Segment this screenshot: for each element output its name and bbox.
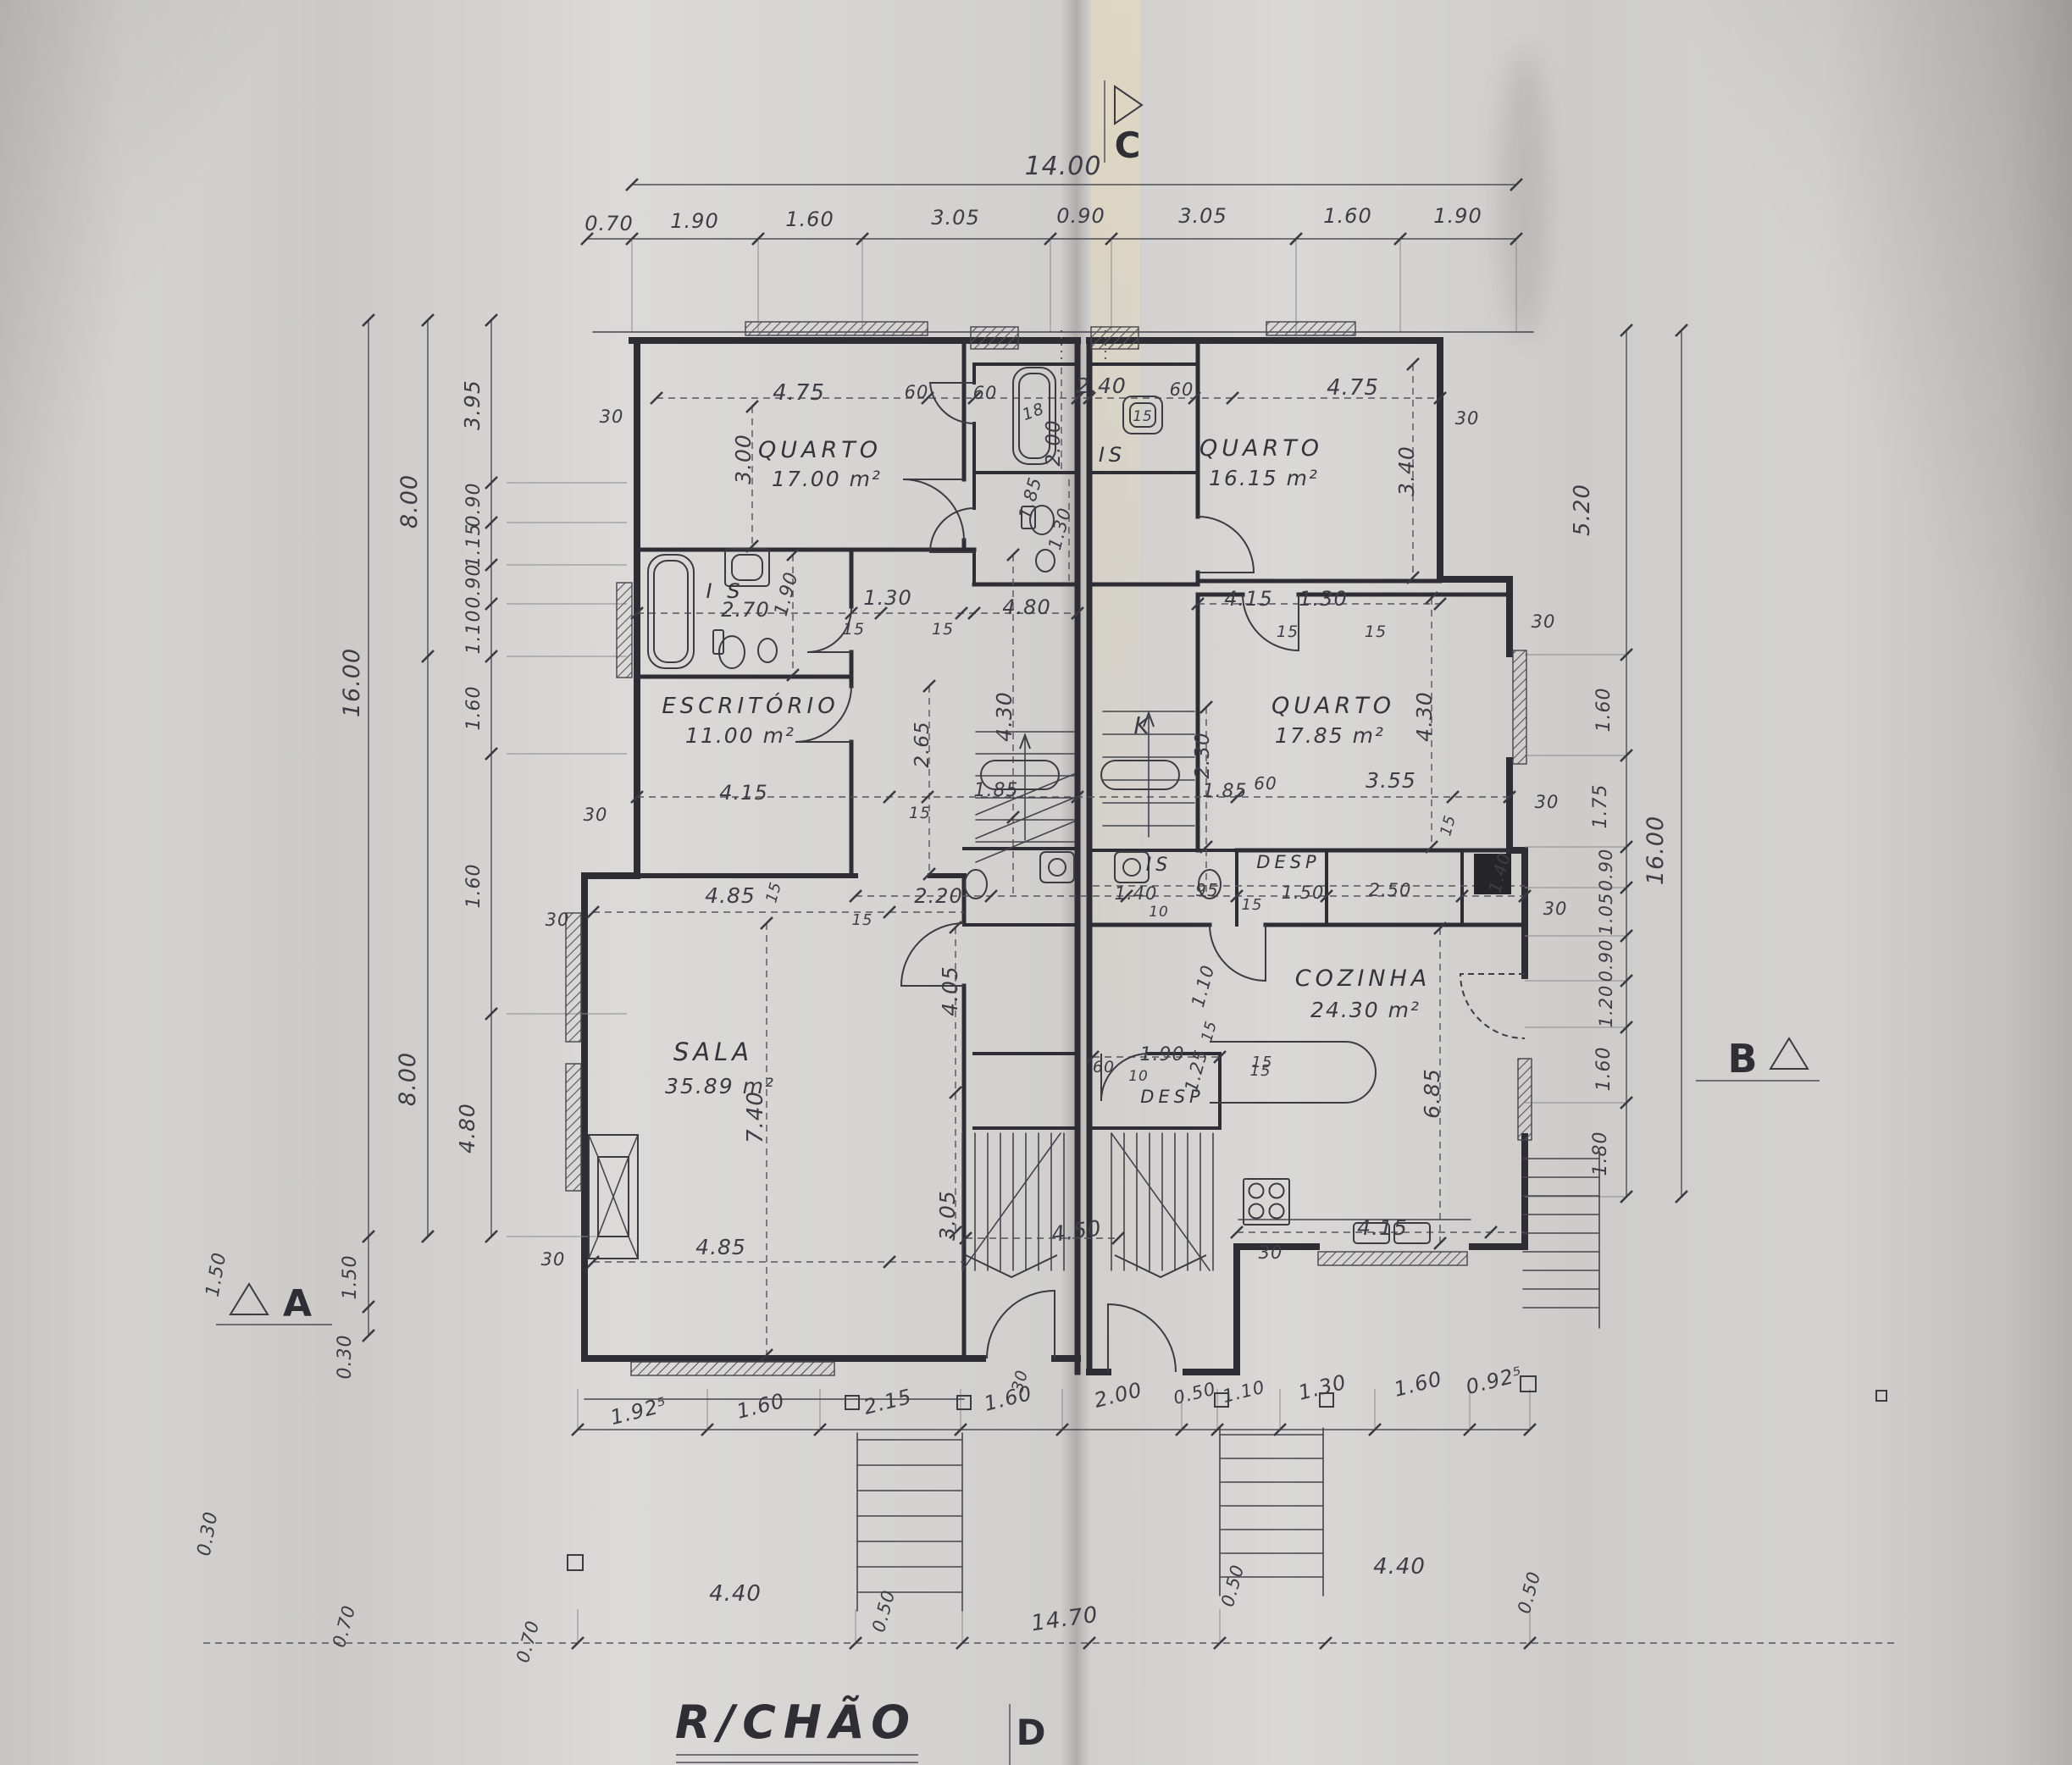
- window-sill-hatch: [745, 322, 928, 335]
- dimension-label: 30: [541, 1249, 566, 1270]
- room-name-label: COZINHA: [1295, 965, 1432, 992]
- door-swing-arc: [1460, 974, 1525, 1038]
- detail-line: [962, 1133, 1061, 1270]
- detail-line: [629, 1237, 638, 1259]
- dimension-label: 15: [1242, 896, 1263, 914]
- dimension-label: 15: [762, 880, 785, 905]
- dimension-label: 0.50: [1514, 1569, 1544, 1616]
- dimension-label: 1.20: [1596, 985, 1616, 1028]
- dimension-label: 1.10: [1221, 1376, 1267, 1407]
- dimension-label: 10: [1149, 904, 1169, 921]
- floor-plan-drawing: 14.000.701.901.603.050.903.051.601.90C16…: [0, 0, 2072, 1765]
- dimension-label: 4.30: [1412, 691, 1437, 742]
- dimension-label: 0.90: [463, 483, 485, 528]
- dimension-label: 1.90: [1433, 204, 1482, 228]
- dimension-label: 1.60: [734, 1389, 788, 1424]
- dimension-label: 4.05: [938, 965, 962, 1016]
- dimension-label: 15: [1365, 622, 1387, 641]
- dimension-label: 7.40: [743, 1091, 768, 1143]
- sanitary-fixture-icon: [1036, 550, 1055, 572]
- room-area-label: 11.00 m²: [685, 723, 795, 748]
- dimension-label: 60: [905, 382, 929, 402]
- dimension-label: 0.30: [335, 1335, 356, 1380]
- dimension-label: 3.05: [1178, 204, 1227, 228]
- dimension-label: 4.80: [1002, 595, 1050, 619]
- dimension-label: 2.20: [914, 884, 962, 908]
- window-sill-hatch: [1518, 1059, 1532, 1140]
- window-sill-hatch: [566, 913, 581, 1042]
- window-sill-hatch: [1266, 322, 1355, 335]
- dimension-label: 1.30: [1296, 1370, 1349, 1405]
- fixture-outline: [845, 1396, 859, 1409]
- window-sill-hatch: [631, 1362, 834, 1375]
- detail-line: [629, 1135, 638, 1157]
- dimension-label: 1.15: [463, 523, 485, 568]
- dimension-label: 60: [1093, 1058, 1115, 1076]
- dimension-label: 30: [600, 407, 624, 427]
- dimension-label: 2.30: [1192, 732, 1214, 778]
- dimension-label: 2.00: [1043, 419, 1065, 466]
- dimension-label: 4.15: [719, 781, 767, 805]
- fixture-circle-icon: [1249, 1204, 1264, 1219]
- dimension-label: 15: [909, 804, 931, 822]
- window-sill-hatch: [1091, 327, 1138, 349]
- dimension-label: 1.60: [1593, 688, 1615, 733]
- dimension-label: 1.85: [1015, 475, 1045, 522]
- dimension-label: 1.50: [340, 1255, 361, 1300]
- dimension-label: 1.50: [1282, 882, 1325, 903]
- dimension-label: 3.40: [1394, 445, 1419, 496]
- dimension-label: 15: [1252, 1054, 1273, 1071]
- dimension-label: 16.00: [1643, 816, 1669, 885]
- dimension-label: 60: [1170, 379, 1194, 400]
- dimension-label: 30: [1259, 1242, 1283, 1263]
- dimension-label: 4.80: [455, 1103, 479, 1154]
- dimension-tick: [884, 791, 895, 803]
- dimension-label: 14.00: [1025, 152, 1102, 181]
- dimension-label: 1.60: [1392, 1367, 1445, 1402]
- sanitary-fixture-icon: [965, 870, 987, 899]
- section-marker-label: B: [1727, 1036, 1759, 1082]
- fixture-outline: [568, 1555, 583, 1570]
- dimension-label: 4.40: [1373, 1554, 1426, 1580]
- room-name-label: IS: [1146, 855, 1172, 876]
- floor-plan-photo: 14.000.701.901.603.050.903.051.601.90C16…: [0, 0, 2072, 1765]
- section-marker-label: A: [283, 1282, 313, 1325]
- door-swing-arc: [930, 508, 974, 552]
- room-name-label: SALA: [673, 1037, 753, 1066]
- dimension-label: 30: [1535, 792, 1560, 812]
- dimension-label: 4.30: [992, 691, 1017, 742]
- dimension-label: 15: [843, 620, 865, 639]
- dimension-label: 5.20: [1570, 484, 1595, 536]
- plan-symbol: [966, 1255, 1057, 1277]
- dimension-label: 3.95: [460, 379, 485, 430]
- dimension-label: 0.50: [1217, 1563, 1248, 1609]
- dimension-label: 1.50: [202, 1251, 231, 1299]
- dimension-label: 1.85: [1203, 781, 1248, 802]
- dimension-label: 1.40: [1115, 883, 1158, 904]
- dimension-label: 1.90: [771, 569, 803, 618]
- dimension-label: 60: [1254, 773, 1277, 794]
- detail-line: [589, 1237, 598, 1259]
- dimension-label: 6.85: [1420, 1068, 1444, 1119]
- dimension-label: 1.10: [1188, 963, 1218, 1010]
- dimension-label: 3.00: [731, 434, 756, 484]
- dimension-label: 3.05: [931, 206, 979, 230]
- window-sill-hatch: [971, 327, 1018, 349]
- dimension-label: 2.40: [1076, 373, 1127, 398]
- fixture-circle-icon: [1270, 1204, 1284, 1219]
- dimension-label: 2.70: [721, 598, 769, 622]
- dimension-label: 4.75: [773, 380, 825, 406]
- dimension-label: 30: [546, 910, 570, 930]
- dimension-label: 3.05: [935, 1190, 960, 1241]
- dimension-label: 0.30: [194, 1510, 223, 1558]
- room-area-label: 17.00 m²: [772, 467, 882, 491]
- window-sill-hatch: [566, 1064, 581, 1191]
- dimension-label: 0.50: [868, 1588, 899, 1635]
- dimension-label: 30: [1455, 408, 1480, 429]
- sanitary-fixture-icon: [758, 639, 777, 662]
- dimension-label: 8.00: [396, 474, 423, 528]
- dimension-label: 1.60: [1593, 1047, 1615, 1092]
- room-name-label: QUARTO: [1199, 435, 1323, 462]
- window-sill-hatch: [1513, 650, 1526, 764]
- dimension-label: 4.40: [709, 1581, 762, 1607]
- room-name-label: DESP: [1256, 852, 1320, 872]
- dimension-label: 1.80: [1590, 1131, 1611, 1176]
- paper-smudge: [1499, 51, 1550, 339]
- dimension-label: 0.70: [512, 1618, 543, 1665]
- door-swing-arc: [1210, 925, 1266, 981]
- dimension-label: 15: [1133, 408, 1153, 425]
- door-swing-arc: [1198, 517, 1254, 573]
- dimension-label: K: [1133, 711, 1151, 739]
- dimension-label: 16.00: [339, 648, 365, 717]
- dimension-label: 1.60: [463, 686, 485, 731]
- window-sill-hatch: [1318, 1252, 1467, 1265]
- dimension-label: 30: [1532, 611, 1556, 632]
- plan-symbol: [230, 1284, 268, 1314]
- detail-line: [589, 1135, 598, 1157]
- dimension-label: 15: [852, 911, 873, 929]
- dimension-label: 0.70: [584, 212, 633, 235]
- dimension-label: 15: [1277, 622, 1299, 641]
- room-area-label: 24.30 m²: [1310, 998, 1421, 1022]
- room-name-label: QUARTO: [758, 437, 882, 463]
- dimension-label: 4.85: [705, 883, 756, 908]
- dimension-label: 15: [932, 620, 954, 639]
- fixture-outline: [732, 555, 762, 580]
- dimension-label: 1.90: [670, 209, 718, 233]
- room-name-label: QUARTO: [1271, 693, 1395, 719]
- drawing-title: R/CHÃO: [675, 1696, 917, 1749]
- dimension-label: 1.60: [1323, 204, 1371, 228]
- dimension-label: 0.50: [1172, 1378, 1218, 1408]
- fixture-outline: [1876, 1391, 1886, 1401]
- plan-symbol: [1770, 1038, 1808, 1069]
- room-name-label: IS: [1099, 443, 1126, 467]
- dimension-label: 1.60: [463, 864, 485, 909]
- plan-symbol: [1210, 1042, 1376, 1103]
- dimension-label: 8.00: [395, 1052, 421, 1106]
- dimension-label: 10: [1128, 1068, 1149, 1085]
- dimension-label: 1.30: [863, 586, 911, 610]
- dimension-label: 4.15: [1357, 1215, 1408, 1240]
- dimension-label: 1.05: [1596, 893, 1616, 936]
- dimension-label: 0.90: [1056, 204, 1105, 228]
- dimension-label: 4.75: [1327, 375, 1379, 401]
- fixture-outline: [654, 561, 688, 662]
- dimension-label: 1.30: [1299, 587, 1347, 611]
- dimension-label: 4.15: [1224, 587, 1272, 611]
- fixture-circle-icon: [1249, 1184, 1264, 1198]
- dimension-label: 1.10: [463, 610, 485, 655]
- dimension-label: 15: [1198, 1019, 1221, 1043]
- dimension-label: 30: [584, 805, 608, 825]
- fixture-outline: [957, 1396, 971, 1409]
- dimension-label: 1.90: [1140, 1044, 1185, 1065]
- dimension-label: 0.90: [1596, 849, 1616, 892]
- door-swing-arc: [987, 1291, 1055, 1358]
- dimension-label: 1.75: [1590, 784, 1611, 829]
- dimension-label: 0.70: [329, 1603, 359, 1650]
- dimension-label: 2.65: [911, 721, 934, 767]
- room-area-label: 17.85 m²: [1275, 723, 1385, 748]
- dimension-label: 1.85: [974, 780, 1019, 801]
- fixture-circle-icon: [1270, 1184, 1284, 1198]
- dimension-label: 60: [973, 383, 998, 403]
- dimension-label: 0.90: [463, 564, 485, 609]
- dimension-label: 30: [1543, 899, 1568, 919]
- dimension-label: 4.85: [695, 1235, 746, 1259]
- dimension-label: 3.55: [1366, 768, 1416, 793]
- dimension-label: 1.92⁵: [608, 1392, 670, 1430]
- section-marker-label: C: [1115, 124, 1143, 166]
- dimension-label: 0.90: [1596, 939, 1616, 982]
- room-area-label: 16.15 m²: [1209, 466, 1319, 490]
- dimension-label: 2.50: [1369, 880, 1412, 900]
- dimension-label: 0.92⁵: [1464, 1362, 1526, 1399]
- dimension-label: 1.60: [785, 207, 834, 231]
- dimension-label: 95: [1195, 880, 1218, 900]
- door-swing-arc: [903, 479, 964, 540]
- window-sill-hatch: [617, 583, 632, 678]
- dimension-label: 15: [1437, 813, 1460, 838]
- section-marker-label: D: [1017, 1712, 1048, 1753]
- room-name-label: ESCRITÓRIO: [662, 692, 839, 719]
- dimension-label: 2.15: [861, 1385, 915, 1419]
